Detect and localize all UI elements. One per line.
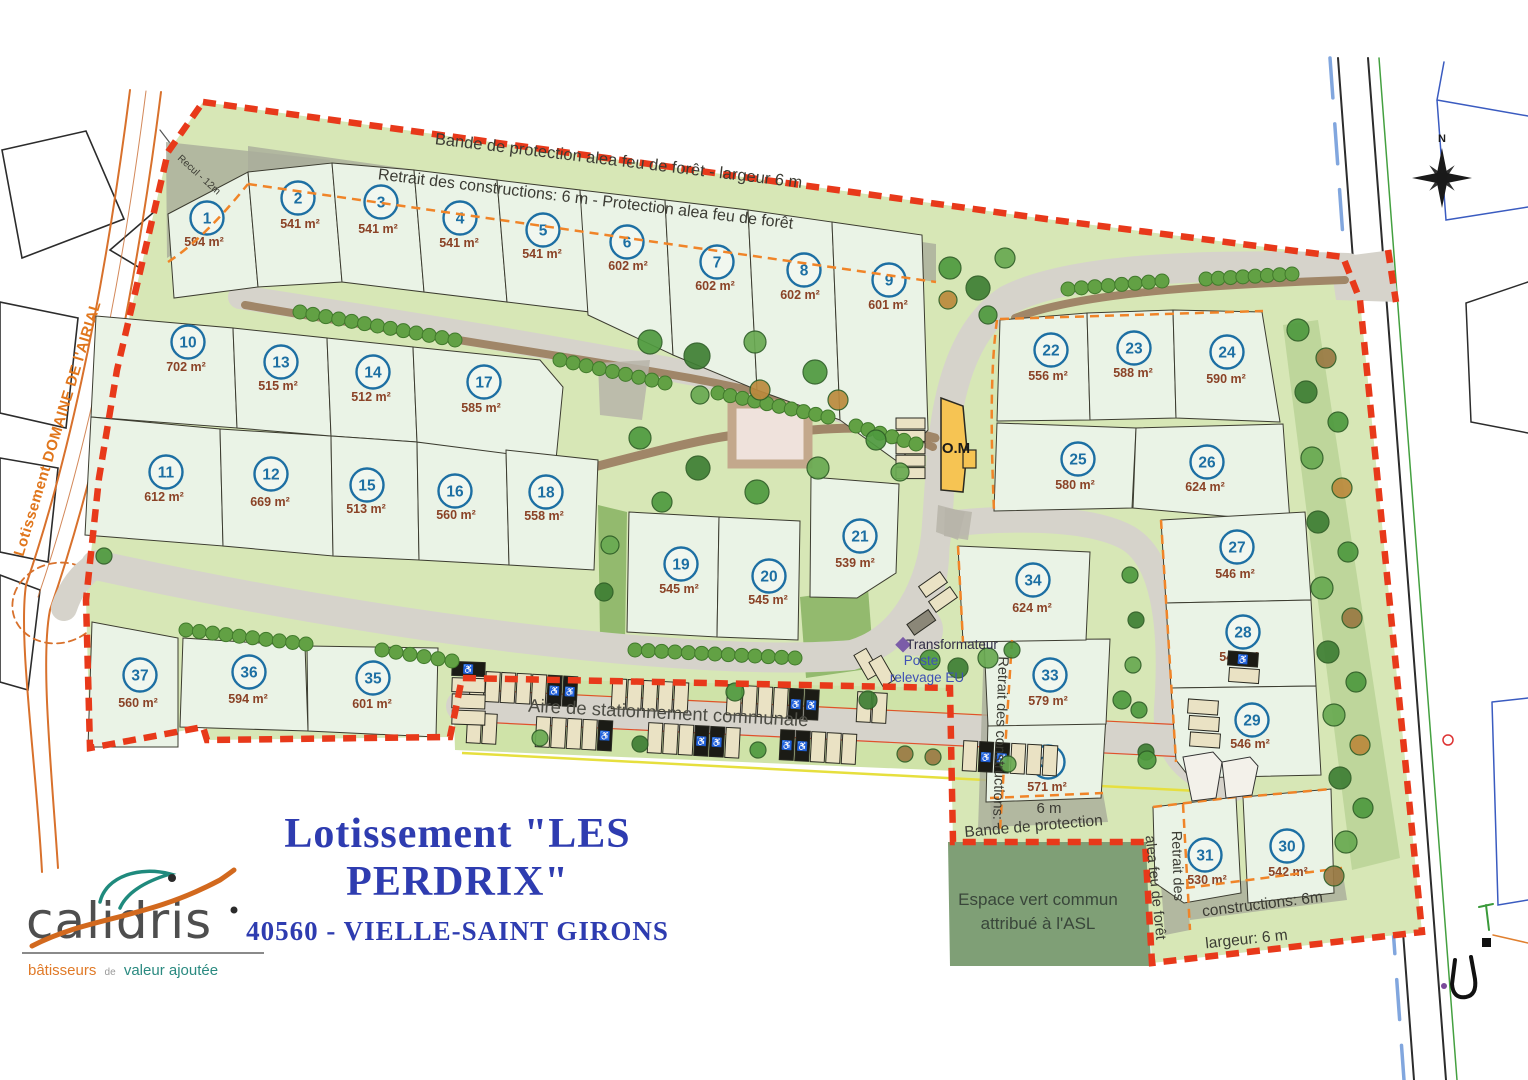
tree-icon (1323, 704, 1345, 726)
lot-area: 594 m² (228, 692, 268, 706)
tree-icon (939, 291, 957, 309)
calidris-logo-graphic: calidris bâtisseurs de valeur ajoutée (20, 858, 270, 983)
lot-23: 23588 m² (1087, 310, 1176, 420)
lot-number: 35 (364, 671, 382, 688)
lot-area: 512 m² (351, 390, 391, 404)
lot-18: 18558 m² (506, 450, 598, 570)
hedge-shrub (396, 324, 410, 338)
hedge-shrub (1115, 277, 1129, 291)
lot-number: 16 (446, 484, 464, 501)
tree-icon (601, 536, 619, 554)
hedge-shrub (1061, 282, 1075, 296)
svg-text:bâtisseurs de vale: bâtisseurs de valeur ajoutée (28, 962, 218, 979)
hedge-shrub (735, 391, 749, 405)
lot-area: 558 m² (524, 509, 564, 523)
lot-14: 14512 m² (327, 338, 417, 442)
hedge-shrub (721, 648, 735, 662)
tree-icon (1346, 672, 1366, 692)
hedge-shrub (435, 331, 449, 345)
lot-25: 25580 m² (994, 423, 1136, 511)
hedge-shrub (445, 654, 459, 668)
road-end-marking (1452, 957, 1475, 997)
lot-12: 12669 m² (220, 429, 333, 556)
lot-parcel (997, 313, 1090, 421)
survey-point-circle (1443, 735, 1453, 745)
hedge-shrub (606, 365, 620, 379)
hedge-shrub (681, 646, 695, 660)
lot-number: 5 (539, 223, 548, 240)
neighbour-building-outline (0, 575, 40, 690)
tree-icon (632, 736, 648, 752)
parking-stall (841, 734, 857, 765)
hedge-shrub (299, 637, 313, 651)
hedge-shrub (448, 333, 462, 347)
tree-icon (595, 583, 613, 601)
hedge-shrub (371, 319, 385, 333)
lot-2: 2541 m² (248, 163, 342, 287)
hedge-shrub (403, 647, 417, 661)
tree-icon (1342, 608, 1362, 628)
hedge-shrub (1155, 274, 1169, 288)
lot-number: 22 (1042, 343, 1059, 360)
hedge-shrub (192, 625, 206, 639)
poste-relevage-label-line2: relevage EU (890, 670, 964, 685)
utility-box (1482, 938, 1491, 947)
lot-31: 31530 m² (1153, 797, 1241, 903)
tree-icon (939, 257, 961, 279)
tree-icon (629, 427, 651, 449)
lot-area: 545 m² (659, 582, 699, 596)
lot-area: 539 m² (835, 556, 875, 570)
calidris-logo: calidris bâtisseurs de valeur ajoutée (20, 858, 270, 983)
hedge-shrub (761, 650, 775, 664)
lot-area: 571 m² (1027, 780, 1067, 794)
espace-vert-label-line2: attribué à l'ASL (981, 914, 1096, 933)
tree-icon (1138, 751, 1156, 769)
compass-rose-icon: N (1412, 133, 1472, 208)
lot-number: 37 (131, 668, 148, 685)
lot-area: 602 m² (695, 279, 735, 293)
hedge-shrub (1088, 280, 1102, 294)
lot-19: 19545 m² (627, 512, 719, 637)
parking-stall (1190, 732, 1221, 748)
lot-number: 1 (203, 211, 212, 228)
lot-number: 33 (1041, 668, 1059, 685)
lot-number: 26 (1198, 455, 1216, 472)
lot-area: 515 m² (258, 379, 298, 393)
parking-stall (663, 724, 679, 755)
hedge-shrub (655, 644, 669, 658)
tree-icon (1125, 657, 1141, 673)
tree-icon (1329, 767, 1351, 789)
logo-name: calidris (26, 892, 212, 950)
tree-icon (925, 749, 941, 765)
lot-area: 541 m² (280, 217, 320, 231)
lot-area: 546 m² (1230, 737, 1270, 751)
parking-stall (725, 727, 741, 758)
hedge-shrub (735, 648, 749, 662)
hedge-shrub (286, 635, 300, 649)
wheelchair-icon: ♿ (980, 751, 992, 763)
lot-20: 20545 m² (717, 517, 800, 640)
lot-37: 37560 m² (88, 622, 178, 747)
bird-eye-icon (168, 874, 176, 882)
lot-number: 21 (851, 529, 869, 546)
hedge-shrub (179, 623, 193, 637)
lot-number: 15 (358, 478, 376, 495)
lot-area: 602 m² (608, 259, 648, 273)
tree-icon (807, 457, 829, 479)
hedge-shrub (708, 647, 722, 661)
planting-patch (598, 505, 627, 640)
tree-icon (638, 330, 662, 354)
wheelchair-icon: ♿ (781, 739, 793, 751)
wheelchair-icon: ♿ (564, 686, 576, 698)
parking-stall (551, 718, 567, 749)
tree-icon (1128, 612, 1144, 628)
hedge-shrub (628, 643, 642, 657)
hedge-shrub (259, 632, 273, 646)
hedge-shrub (422, 328, 436, 342)
lot-area: 624 m² (1185, 480, 1225, 494)
lot-17: 17585 m² (413, 347, 563, 460)
lot-parcel (220, 429, 333, 556)
hedge-shrub (293, 305, 307, 319)
lot-number: 13 (272, 355, 290, 372)
tree-icon (1353, 798, 1373, 818)
hedge-shrub (658, 376, 672, 390)
hedge-shrub (409, 326, 423, 340)
hedge-shrub (821, 410, 835, 424)
bird-dot-icon (231, 907, 238, 914)
orange-boundary-line (1493, 935, 1528, 943)
lot-area: 560 m² (118, 696, 158, 710)
tree-icon (686, 456, 710, 480)
wheelchair-icon: ♿ (797, 740, 809, 752)
parking-stall (582, 719, 598, 750)
tree-icon (1338, 542, 1358, 562)
compass-north-label: N (1438, 133, 1446, 145)
lot-30: 30542 m² (1243, 789, 1334, 903)
wheelchair-icon: ♿ (1237, 653, 1249, 665)
tree-icon (1301, 447, 1323, 469)
site-plan-canvas: N 1594 m²2541 m²3541 m²4541 m²5541 m²660… (0, 0, 1528, 1080)
lot-area: 669 m² (250, 495, 290, 509)
parking-stall (826, 733, 842, 764)
logo-tagline-part3: valeur ajoutée (124, 962, 218, 979)
lot-number: 20 (760, 569, 777, 586)
hedge-shrub (909, 437, 923, 451)
hedge-shrub (1285, 267, 1299, 281)
lot-34: 34624 m² (958, 546, 1090, 642)
lot-number: 36 (240, 665, 258, 682)
lot-number: 2 (294, 191, 303, 208)
lot-area: 513 m² (346, 502, 386, 516)
hedge-shrub (641, 644, 655, 658)
lot-number: 14 (364, 365, 382, 382)
hedge-shrub (772, 399, 786, 413)
hedge-shrub (319, 310, 333, 324)
hedge-shrub (695, 646, 709, 660)
six-m-label: 6 m (1036, 800, 1061, 817)
hedge-shrub (246, 631, 260, 645)
transformateur-label: Transformateur (906, 637, 998, 652)
tree-icon (966, 276, 990, 300)
hedge-shrub (232, 629, 246, 643)
tree-icon (1324, 866, 1344, 886)
tree-icon (828, 390, 848, 410)
lot-area: 612 m² (144, 490, 184, 504)
lot-area: 585 m² (461, 401, 501, 415)
lot-22: 22556 m² (997, 313, 1090, 421)
espace-vert-label-line1: Espace vert commun (958, 890, 1118, 909)
lot-number: 24 (1218, 345, 1236, 362)
tree-icon (891, 463, 909, 481)
tree-icon (1307, 511, 1329, 533)
tree-icon (745, 480, 769, 504)
lot-area: 702 m² (166, 360, 206, 374)
lot-number: 30 (1278, 839, 1295, 856)
hedge-shrub (797, 405, 811, 419)
tree-icon (96, 548, 112, 564)
parking-stall (1026, 744, 1042, 775)
lot-number: 31 (1196, 848, 1214, 865)
lot-number: 10 (179, 335, 196, 352)
hedge-shrub (645, 373, 659, 387)
tree-icon (1332, 478, 1352, 498)
lot-number: 8 (800, 263, 809, 280)
hedge-shrub (389, 645, 403, 659)
tree-icon (684, 343, 710, 369)
lot-area: 594 m² (184, 235, 224, 249)
tree-icon (859, 691, 877, 709)
lot-number: 7 (713, 255, 722, 272)
lot-area: 579 m² (1028, 694, 1068, 708)
lot-area: 541 m² (522, 247, 562, 261)
wheelchair-icon: ♿ (696, 735, 708, 747)
lot-13: 13515 m² (233, 328, 331, 436)
tree-icon (897, 746, 913, 762)
parking-stall (962, 741, 978, 772)
hedge-shrub (375, 643, 389, 657)
tree-icon (1335, 831, 1357, 853)
hedge-shrub (431, 652, 445, 666)
lot-area: 545 m² (748, 593, 788, 607)
parking-stall (1229, 667, 1260, 683)
parking-stall (810, 732, 826, 763)
tree-symbol-t (1479, 904, 1493, 930)
parking-stall (678, 725, 694, 756)
lot-area: 601 m² (868, 298, 908, 312)
hedge-shrub (206, 626, 220, 640)
tree-icon (1287, 319, 1309, 341)
hedge-shrub (748, 649, 762, 663)
lot-15: 15513 m² (331, 436, 419, 560)
parking-stall (1042, 745, 1058, 776)
tree-icon (1317, 641, 1339, 663)
lot-area: 541 m² (439, 236, 479, 250)
tree-icon (979, 306, 997, 324)
lot-21: 21539 m² (810, 477, 899, 598)
lot-area: 590 m² (1206, 372, 1246, 386)
lot-area: 546 m² (1215, 567, 1255, 581)
tree-icon (1350, 735, 1370, 755)
lot-area: 541 m² (358, 222, 398, 236)
parking-stall (566, 718, 582, 749)
lot-number: 19 (672, 557, 690, 574)
lot-number: 34 (1024, 573, 1042, 590)
lot-area: 542 m² (1268, 865, 1308, 879)
hedge-shrub (1142, 275, 1156, 289)
lot-area: 560 m² (436, 508, 476, 522)
hedge-shrub (788, 651, 802, 665)
wheelchair-icon: ♿ (549, 685, 561, 697)
lot-number: 11 (158, 465, 175, 482)
lot-area: 556 m² (1028, 369, 1068, 383)
poste-relevage-label-line1: Poste (904, 653, 939, 668)
lot-26: 26624 m² (1133, 424, 1290, 522)
parking-stall (647, 723, 663, 754)
wheelchair-icon: ♿ (711, 736, 723, 748)
hedge-shrub (553, 353, 567, 367)
tree-icon (744, 331, 766, 353)
lot-24: 24590 m² (1173, 310, 1280, 422)
lot-area: 588 m² (1113, 366, 1153, 380)
tree-icon (750, 380, 770, 400)
hedge-shrub (383, 321, 397, 335)
hedge-shrub (272, 634, 286, 648)
tree-icon (691, 386, 709, 404)
cadastre-parcel-blue (1492, 698, 1528, 905)
tree-icon (866, 430, 886, 450)
hedge-shrub (668, 645, 682, 659)
survey-point-dot (1441, 983, 1447, 989)
lot-number: 28 (1234, 625, 1252, 642)
gravel-patch (944, 508, 972, 540)
hedge-shrub (306, 307, 320, 321)
tree-icon (1295, 381, 1317, 403)
hedge-shrub (711, 386, 725, 400)
tree-icon (750, 742, 766, 758)
cadastre-parcel-black (1466, 282, 1528, 433)
neighbour-building-outline (2, 131, 124, 258)
parking-stall (1189, 715, 1220, 731)
logo-tagline-part1: bâtisseurs (28, 962, 96, 979)
lot-number: 18 (537, 485, 555, 502)
lot-27: 27546 m² (1161, 512, 1311, 603)
hedge-shrub (809, 407, 823, 421)
hedge-shrub (358, 317, 372, 331)
hedge-shrub (579, 359, 593, 373)
hedge-shrub (775, 650, 789, 664)
lot-number: 17 (475, 375, 492, 392)
lot-area: 601 m² (352, 697, 392, 711)
hedge-shrub (619, 367, 633, 381)
hedge-shrub (1074, 281, 1088, 295)
lot-16: 16560 m² (417, 442, 509, 565)
lot-area: 602 m² (780, 288, 820, 302)
driveway-pad (1222, 757, 1258, 798)
parking-stall (1188, 699, 1219, 715)
wheelchair-icon: ♿ (599, 730, 611, 742)
hedge-shrub (592, 362, 606, 376)
hedge-shrub (723, 389, 737, 403)
retrait-des-vertical-label: Retrait des (1168, 831, 1186, 902)
tree-icon (1131, 702, 1147, 718)
tree-icon (1316, 348, 1336, 368)
tree-icon (652, 492, 672, 512)
lot-36: 36594 m² (180, 638, 308, 731)
lot-number: 25 (1069, 452, 1087, 469)
hedge-shrub (219, 628, 233, 642)
tree-icon (1113, 691, 1131, 709)
tree-icon (803, 360, 827, 384)
logo-tagline-part2: de (105, 967, 117, 978)
lot-area: 580 m² (1055, 478, 1095, 492)
tree-icon (532, 730, 548, 746)
tree-icon (995, 248, 1015, 268)
hedge-shrub (632, 370, 646, 384)
lot-number: 27 (1228, 540, 1245, 557)
lot-area: 624 m² (1012, 601, 1052, 615)
hedge-shrub (417, 650, 431, 664)
tree-icon (1311, 577, 1333, 599)
tree-icon (1328, 412, 1348, 432)
cadastre-parcel-blue (1437, 62, 1528, 220)
parking-stall (896, 418, 925, 429)
hedge-shrub (566, 356, 580, 370)
wheelchair-icon: ♿ (463, 663, 475, 674)
tree-icon (1122, 567, 1138, 583)
lot-number: 12 (262, 467, 279, 484)
hedge-shrub (345, 314, 359, 328)
hedge-shrub (1128, 276, 1142, 290)
hedge-shrub (784, 402, 798, 416)
lot-number: 23 (1125, 341, 1143, 358)
lot-number: 29 (1243, 713, 1261, 730)
hedge-shrub (1101, 279, 1115, 293)
hedge-shrub (332, 312, 346, 326)
om-building-label: O.M (942, 440, 970, 457)
